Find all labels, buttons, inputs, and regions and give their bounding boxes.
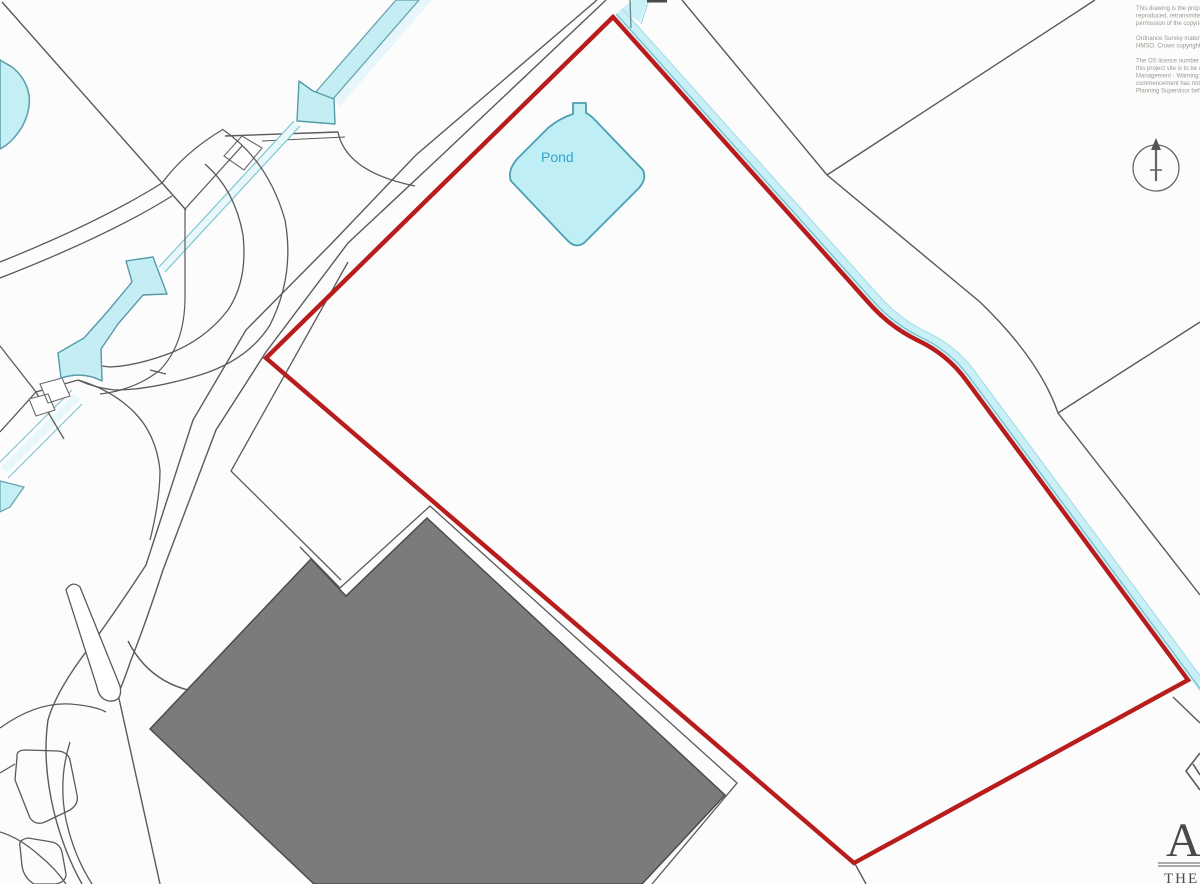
svg-text:THE: THE — [1164, 871, 1199, 884]
svg-text:commencement has not been o: commencement has not been o — [1136, 81, 1200, 87]
svg-text:This drawing is the property o: This drawing is the property of — [1136, 6, 1200, 12]
svg-text:permission of the copyright ow: permission of the copyright own — [1136, 21, 1200, 27]
svg-text:The OS licence number of the c: The OS licence number of the c — [1136, 59, 1200, 65]
svg-text:HMSO, Crown copyright reserv: HMSO, Crown copyright reserv — [1136, 44, 1200, 50]
svg-text:reproduced, retransmitted or c: reproduced, retransmitted or co — [1136, 14, 1200, 20]
svg-text:A: A — [1166, 814, 1200, 867]
svg-text:Management - Warning: It is no: Management - Warning: It is no — [1136, 74, 1200, 80]
svg-text:Planning Supervisor before any: Planning Supervisor before any — [1136, 89, 1200, 95]
svg-text:Pond: Pond — [541, 149, 574, 165]
svg-text:this project site is to be con: this project site is to be confirme — [1136, 66, 1200, 72]
svg-text:Ordnance Survey material with: Ordnance Survey material with t — [1136, 36, 1200, 42]
